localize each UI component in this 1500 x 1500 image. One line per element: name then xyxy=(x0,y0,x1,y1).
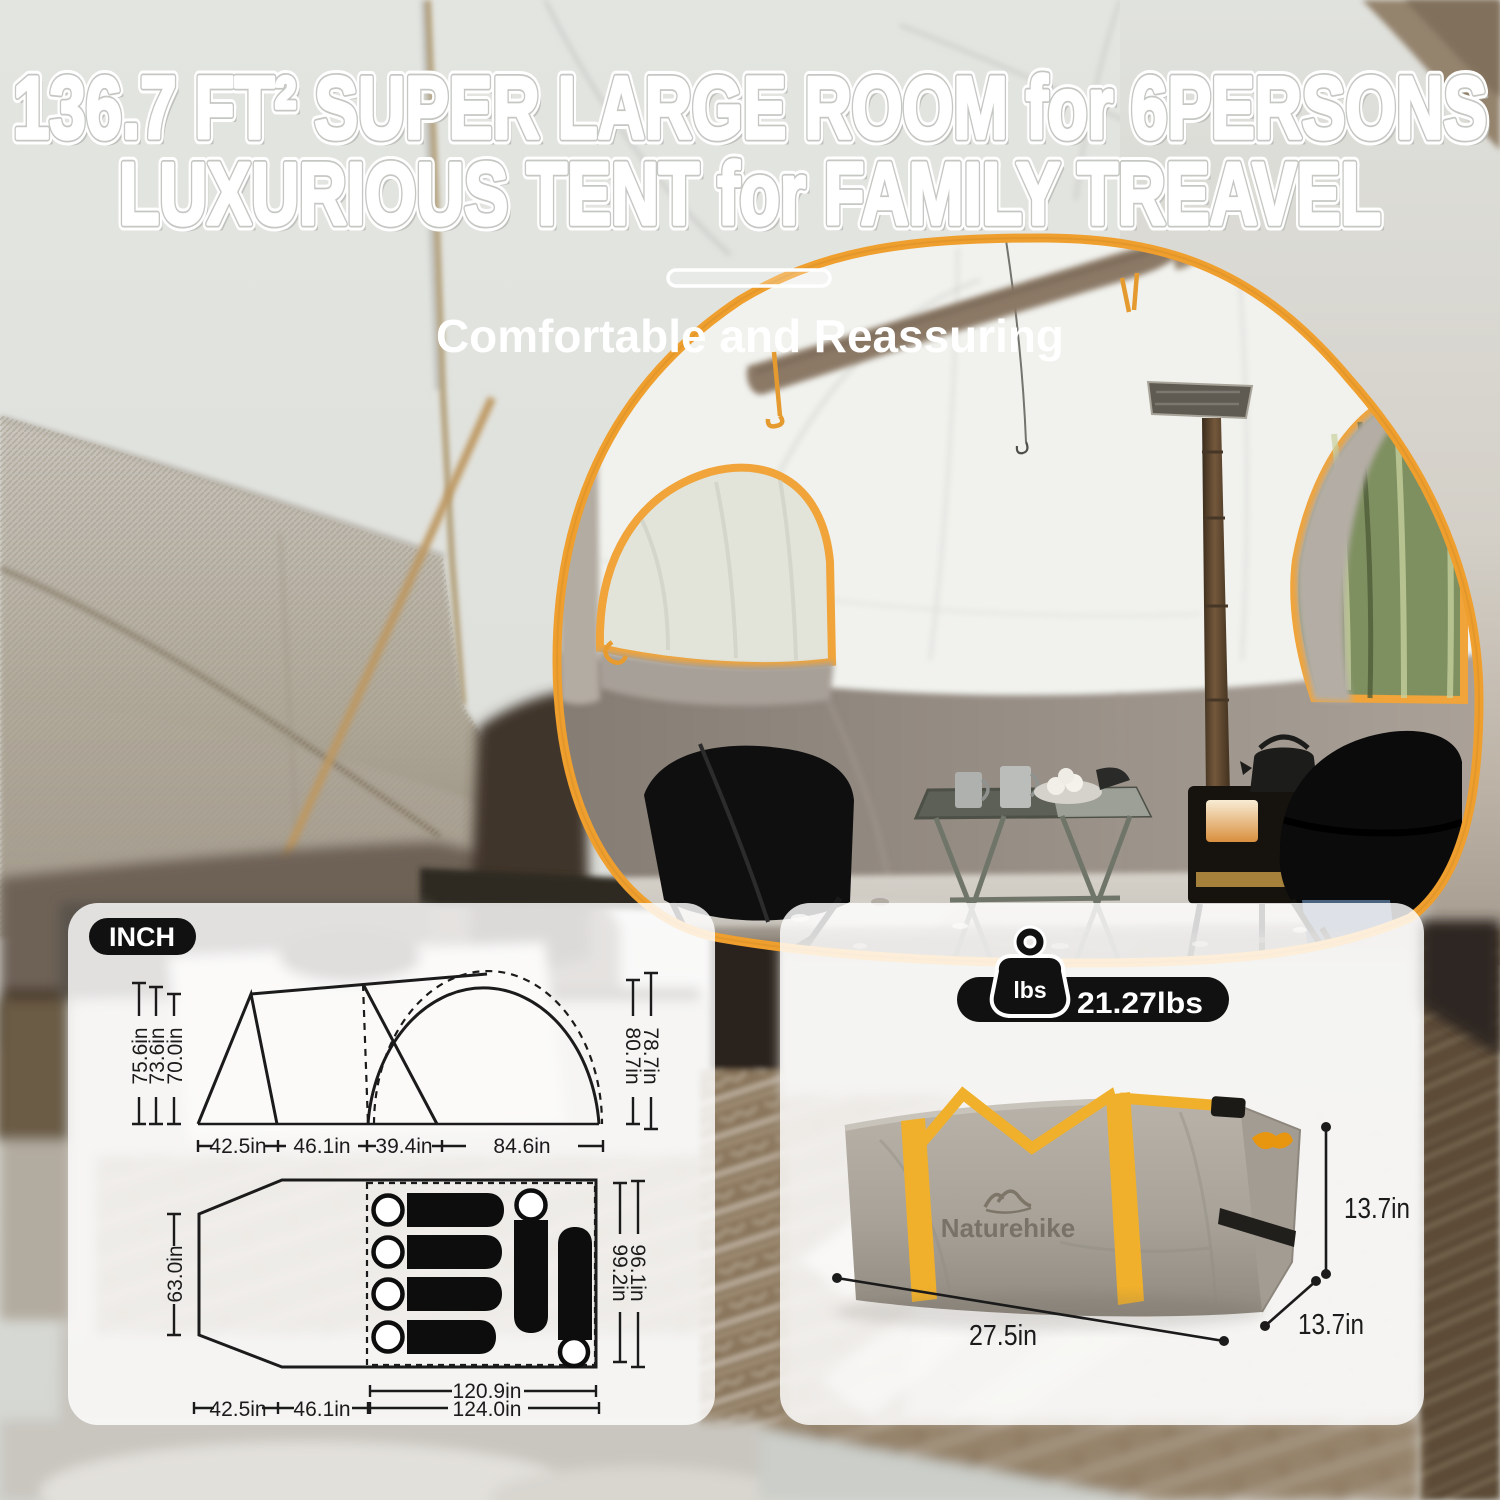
svg-text:78.7in: 78.7in xyxy=(639,1027,662,1084)
svg-text:13.7in: 13.7in xyxy=(1344,1193,1410,1225)
svg-text:84.6in: 84.6in xyxy=(493,1135,550,1158)
svg-text:63.0in: 63.0in xyxy=(164,1245,187,1302)
svg-text:42.5in: 42.5in xyxy=(209,1398,266,1421)
svg-text:13.7in: 13.7in xyxy=(1298,1309,1364,1341)
svg-text:136.7 FT² SUPER LARGE ROOM for: 136.7 FT² SUPER LARGE ROOM for 6PERSONS xyxy=(13,58,1487,157)
svg-text:42.5in: 42.5in xyxy=(209,1135,266,1158)
svg-text:96.1in: 96.1in xyxy=(626,1244,649,1301)
svg-text:Naturehike: Naturehike xyxy=(941,1213,1075,1243)
svg-text:lbs: lbs xyxy=(1013,977,1046,1003)
svg-text:27.5in: 27.5in xyxy=(969,1320,1037,1352)
svg-text:124.0in: 124.0in xyxy=(453,1398,522,1421)
svg-text:LUXURIOUS TENT for FAMILY TREA: LUXURIOUS TENT for FAMILY TREAVEL xyxy=(119,144,1381,243)
svg-text:Comfortable and Reassuring: Comfortable and Reassuring xyxy=(436,310,1064,362)
svg-text:46.1in: 46.1in xyxy=(293,1398,350,1421)
svg-text:46.1in: 46.1in xyxy=(293,1135,350,1158)
svg-text:INCH: INCH xyxy=(109,922,175,952)
svg-text:39.4in: 39.4in xyxy=(375,1135,432,1158)
svg-text:70.0in: 70.0in xyxy=(164,1027,187,1084)
svg-text:21.27lbs: 21.27lbs xyxy=(1077,987,1203,1020)
